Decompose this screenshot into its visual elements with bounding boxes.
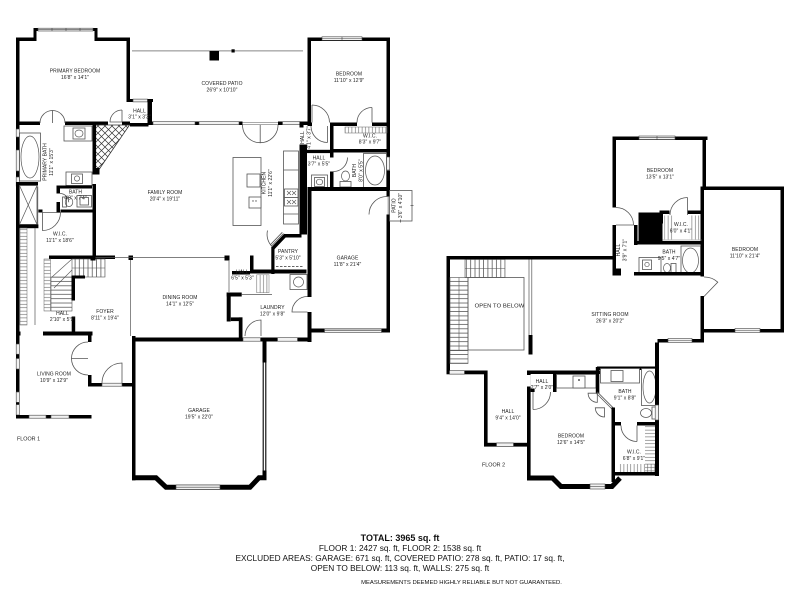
svg-text:EXCLUDED AREAS: GARAGE: 671 sq: EXCLUDED AREAS: GARAGE: 671 sq. ft, COVE… (235, 553, 564, 563)
svg-text:3'6" x 4'10": 3'6" x 4'10" (398, 193, 404, 218)
svg-text:6'5" x 5'3": 6'5" x 5'3" (231, 276, 254, 282)
svg-text:3'1" x 3'3": 3'1" x 3'3" (128, 115, 151, 121)
svg-text:10'9" x 12'9": 10'9" x 12'9" (40, 378, 68, 384)
svg-text:DINING ROOM: DINING ROOM (163, 295, 198, 301)
svg-text:BEDROOM: BEDROOM (558, 434, 584, 440)
svg-text:16'8" x 14'1": 16'8" x 14'1" (61, 75, 89, 81)
svg-text:FLOOR 1: FLOOR 1 (17, 437, 40, 443)
svg-text:PANTRY: PANTRY (278, 249, 299, 255)
svg-text:8'11" x 19'4": 8'11" x 19'4" (91, 316, 119, 322)
svg-text:26'9" x 10'10": 26'9" x 10'10" (207, 88, 238, 94)
svg-text:BEDROOM: BEDROOM (647, 168, 673, 174)
svg-text:LIVING ROOM: LIVING ROOM (37, 372, 71, 378)
svg-text:SITTING ROOM: SITTING ROOM (591, 312, 628, 318)
svg-text:11'1" x 15'3": 11'1" x 15'3" (49, 148, 55, 176)
svg-text:12'6" x 14'5": 12'6" x 14'5" (557, 440, 585, 446)
svg-text:PATIO: PATIO (392, 198, 398, 213)
svg-text:6'0" x 4'1": 6'0" x 4'1" (670, 229, 693, 235)
svg-text:3'7" x 5'5": 3'7" x 5'5" (308, 162, 331, 168)
svg-text:GARAGE: GARAGE (188, 408, 210, 414)
svg-text:BATH: BATH (618, 389, 632, 395)
svg-text:11'8" x 21'4": 11'8" x 21'4" (334, 262, 362, 268)
svg-text:9'4" x 14'0": 9'4" x 14'0" (495, 416, 520, 422)
svg-text:6'8" x 9'1": 6'8" x 9'1" (623, 456, 646, 462)
svg-text:W.I.C.: W.I.C. (674, 222, 688, 228)
svg-text:2'10" x 5'9": 2'10" x 5'9" (50, 317, 75, 323)
svg-text:PRIMARY BEDROOM: PRIMARY BEDROOM (50, 69, 101, 75)
svg-text:MEASUREMENTS DEEMED HIGHLY REL: MEASUREMENTS DEEMED HIGHLY RELIABLE BUT … (361, 580, 562, 586)
svg-text:W.I.C.: W.I.C. (627, 450, 641, 456)
svg-text:5'3" x 5'10": 5'3" x 5'10" (275, 256, 300, 262)
svg-text:HALL: HALL (300, 131, 306, 144)
svg-text:OPEN TO BELOW: 113 sq. ft, WAL: OPEN TO BELOW: 113 sq. ft, WALLS: 275 sq… (311, 563, 490, 573)
svg-text:TOTAL: 3965 sq. ft: TOTAL: 3965 sq. ft (361, 533, 440, 543)
svg-text:LAUNDRY: LAUNDRY (260, 305, 285, 311)
svg-text:19'5" x 22'0": 19'5" x 22'0" (185, 415, 213, 421)
svg-text:FLOOR 2: FLOOR 2 (482, 463, 505, 469)
svg-text:9'1" x 8'8": 9'1" x 8'8" (614, 396, 637, 402)
svg-text:KITCHEN: KITCHEN (262, 172, 268, 195)
svg-text:BATH: BATH (662, 250, 676, 256)
svg-text:PRIMARY BATH: PRIMARY BATH (43, 143, 49, 181)
svg-text:20'4" x 19'11": 20'4" x 19'11" (150, 197, 181, 203)
svg-text:2'7" x 2'0": 2'7" x 2'0" (531, 385, 554, 391)
svg-text:FAMILY ROOM: FAMILY ROOM (148, 190, 183, 196)
svg-text:COVERED PATIO: COVERED PATIO (201, 81, 242, 87)
svg-text:GARAGE: GARAGE (337, 256, 359, 262)
svg-text:9'5" x 4'7": 9'5" x 4'7" (658, 256, 681, 262)
svg-text:12'0" x 9'8": 12'0" x 9'8" (260, 312, 285, 318)
svg-text:FLOOR 1: 2427 sq. ft, FLOOR 2:: FLOOR 1: 2427 sq. ft, FLOOR 2: 1538 sq. … (319, 543, 482, 553)
svg-text:8'0" x 5'5": 8'0" x 5'5" (359, 159, 365, 182)
svg-text:HALL: HALL (502, 409, 515, 415)
svg-text:13'5" x 13'1": 13'5" x 13'1" (646, 175, 674, 181)
svg-text:14'1" x 12'5": 14'1" x 12'5" (166, 302, 194, 308)
svg-text:FOYER: FOYER (96, 309, 114, 315)
svg-text:4'1" x 3'7": 4'1" x 3'7" (307, 126, 313, 149)
svg-text:8'3" x 9'7": 8'3" x 9'7" (359, 140, 382, 146)
svg-text:HALL: HALL (616, 243, 622, 256)
svg-text:11'10" x 12'9": 11'10" x 12'9" (334, 78, 365, 84)
svg-text:3'9" x 7'1": 3'9" x 7'1" (623, 239, 629, 262)
svg-text:BEDROOM: BEDROOM (336, 72, 362, 78)
svg-text:11'10" x 21'4": 11'10" x 21'4" (730, 254, 761, 260)
svg-text:W.I.C.: W.I.C. (53, 232, 67, 238)
svg-text:11'1" x 18'6": 11'1" x 18'6" (46, 238, 74, 244)
svg-text:BEDROOM: BEDROOM (732, 247, 758, 253)
svg-text:OPEN TO BELOW: OPEN TO BELOW (475, 304, 525, 310)
svg-text:BATH: BATH (352, 164, 358, 178)
svg-text:4'8" x 7'4": 4'8" x 7'4" (64, 195, 87, 201)
svg-text:26'3" x 20'2": 26'3" x 20'2" (596, 319, 624, 325)
svg-text:11'1" x 22'6": 11'1" x 22'6" (268, 169, 274, 197)
